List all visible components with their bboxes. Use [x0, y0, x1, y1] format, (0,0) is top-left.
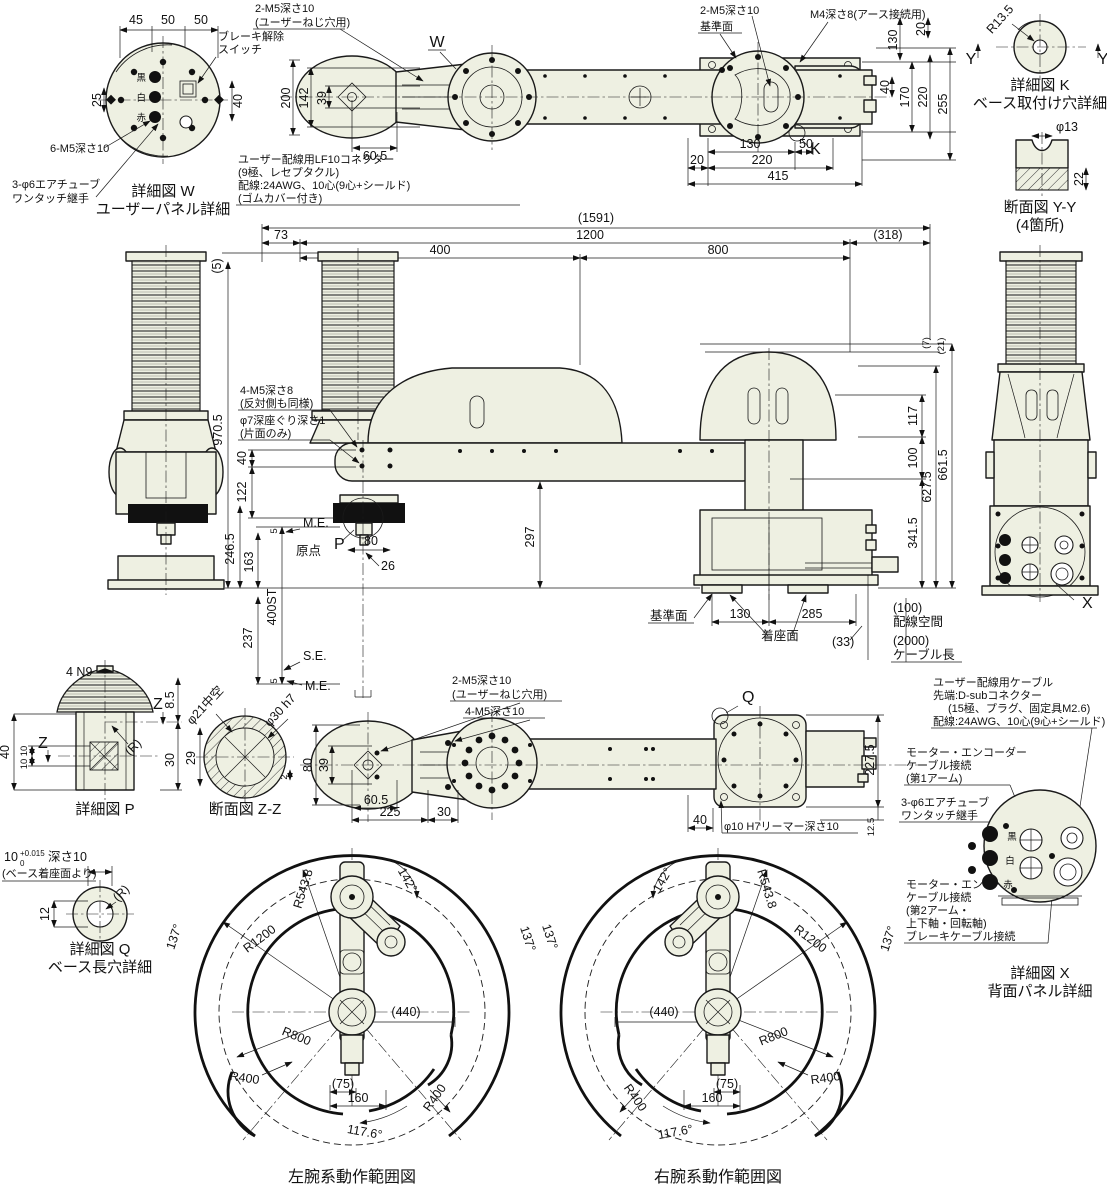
cable-air-2: ワンタッチ継手 [901, 808, 978, 822]
envr-75: (75) [716, 1077, 738, 1091]
x-wire-white: 白 [1005, 855, 1015, 867]
marker-p: P [334, 536, 345, 553]
tol-depth: 深さ10 [48, 850, 87, 864]
wire-white-label: 白 [136, 92, 146, 104]
dim-21: (21) [936, 338, 947, 355]
dim-80-elev: 80 [364, 534, 378, 548]
envl-440: (440) [391, 1005, 420, 1019]
dim-50b: 50 [194, 13, 208, 27]
label-datum-bottom: 基準面 [650, 608, 688, 623]
dim-20v: 20 [914, 22, 928, 36]
detail-x-subtitle: 背面パネル詳細 [987, 983, 1092, 1000]
label-m5b: (反対側も同様) [240, 396, 313, 410]
detail-w-subtitle: ユーザーパネル詳細 [96, 201, 231, 218]
dim-25: 25 [90, 93, 104, 107]
envl-160: 160 [348, 1091, 369, 1105]
dim-40-elev: 40 [235, 451, 249, 465]
plan-user-hole-2: (ユーザーねじ穴用) [255, 15, 350, 29]
dim-40-p: 40 [0, 745, 12, 759]
dim-415: 415 [768, 169, 789, 183]
section-zz-title: 断面図 Z-Z [209, 801, 282, 818]
marker-x: X [1082, 595, 1093, 612]
plan-datum: 基準面 [700, 19, 733, 33]
marker-w: W [429, 34, 445, 51]
marker-q: Q [742, 689, 754, 706]
dim-627-5: 627.5 [920, 471, 934, 502]
dim-8-5: 8.5 [163, 691, 177, 708]
envelope-right-title: 右腕系動作範囲図 [654, 1168, 782, 1186]
dim-39-bottom: 39 [317, 758, 331, 772]
cable-user-2: 先端:D-subコネクター [933, 689, 1042, 702]
section-yy-note: (4箇所) [1016, 217, 1064, 234]
label-cable-length: ケーブル長 [893, 647, 955, 662]
dim-26: 26 [381, 559, 395, 573]
dim-246-5: 246.5 [223, 533, 237, 564]
dim-40-bottom: 40 [693, 813, 707, 827]
bottom-user-hole-1: 2-M5深さ10 [452, 674, 511, 687]
dim-255: 255 [936, 94, 950, 115]
plan-earth-label: M4深さ8(アース接続用) [810, 7, 926, 21]
label-4n9: 4 N9 [66, 665, 92, 679]
detail-x-title: 詳細図 X [1010, 965, 1069, 982]
envelope-left-title: 左腕系動作範囲図 [288, 1168, 416, 1186]
cable-motor2-5: ブレーキケーブル接続 [906, 929, 1015, 943]
dim-661-5: 661.5 [936, 449, 950, 480]
detail-w-title: 詳細図 W [131, 183, 195, 200]
marker-z1: Z [153, 696, 163, 713]
dim-80-bottom: 80 [301, 758, 315, 772]
tol-sup: +0.015 [20, 849, 45, 858]
bottom-m5-label: 4-M5深さ10 [465, 705, 524, 718]
marker-y2: Y [1098, 51, 1107, 68]
wire-red-label: 赤 [136, 113, 146, 124]
dim-40-w: 40 [231, 94, 245, 108]
marker-y1: Y [966, 51, 977, 68]
plan-conn-1: ユーザー配線用LF10コネクター [238, 152, 394, 166]
label-me2: M.E. [305, 679, 331, 693]
dim-39: 39 [315, 91, 329, 105]
dim-1200: 1200 [576, 228, 604, 242]
dim-237: 237 [241, 628, 255, 649]
dim-30-bottom: 30 [437, 805, 451, 819]
brake-label-2: スイッチ [218, 43, 262, 56]
dim-142: 142 [297, 88, 311, 109]
label-se: S.E. [303, 649, 327, 663]
x-wire-black: 黒 [1007, 832, 1017, 843]
plan-conn-4: (ゴムカバー付き) [238, 191, 322, 205]
dim-100w: (100) [893, 601, 922, 615]
cable-motor1-1: モーター・エンコーダー [906, 745, 1027, 759]
cable-user-1: ユーザー配線用ケーブル [933, 675, 1053, 689]
dim-12-5: 12.5 [866, 818, 877, 837]
envl-75: (75) [332, 1077, 354, 1091]
dim-285: 285 [802, 607, 823, 621]
dim-400st: 400ST [265, 588, 279, 625]
dim-297: 297 [523, 527, 537, 548]
dim-2: 2 [279, 774, 290, 779]
dim-130b: 130 [740, 137, 761, 151]
dim-73: 73 [274, 228, 288, 242]
cable-user-4: 配線:24AWG、10心(9心+シールド) [933, 714, 1105, 728]
plan-conn-2: (9極、レセプタクル) [238, 165, 339, 179]
detail-k-title: 詳細図 K [1010, 77, 1069, 94]
dim-10b: 10 [19, 759, 30, 770]
dim-100: 100 [906, 448, 920, 469]
plan-user-hole-1: 2-M5深さ10 [255, 2, 314, 15]
dim-163: 163 [242, 552, 256, 573]
cable-air-1: 3-φ6エアチューブ [901, 795, 989, 809]
label-reamer: φ10 H7リーマー深さ10 [724, 820, 839, 833]
brake-label-1: ブレーキ解除 [218, 29, 284, 43]
dim-800: 800 [708, 243, 729, 257]
label-cbb: (片面のみ) [240, 427, 291, 440]
dim-318: (318) [873, 228, 902, 242]
label-seat: 着座面 [761, 628, 799, 643]
dim-1591: (1591) [578, 211, 614, 225]
cable-motor2-2: ケーブル接続 [906, 890, 971, 904]
tol-sub: 0 [20, 859, 25, 868]
dim-2000: (2000) [893, 634, 929, 648]
envr-160: 160 [702, 1091, 723, 1105]
plan-m5-right: 2-M5深さ10 [700, 4, 759, 17]
wire-black-label: 黒 [136, 73, 146, 84]
bottom-user-hole-2: (ユーザーねじ穴用) [452, 687, 547, 701]
dim-130v: 130 [886, 30, 900, 51]
dim-30-p: 30 [163, 753, 177, 767]
envr-440: (440) [649, 1005, 678, 1019]
label-m5a: 4-M5深さ8 [240, 384, 293, 397]
detail-p-title: 詳細図 P [75, 801, 134, 818]
robot-dimension-drawing: 黒 白 赤 45 50 50 ブレーキ解除 スイッチ 25 40 6-M5深さ1… [0, 0, 1107, 1187]
dim-33: (33) [832, 635, 854, 649]
dim-10a: 10 [19, 746, 30, 757]
detail-k-subtitle: ベース取付け穴詳細 [973, 95, 1107, 112]
dim-117: 117 [906, 406, 920, 426]
label-cba: φ7深座ぐり深さ1 [240, 413, 325, 427]
dim-220b: 220 [752, 153, 773, 167]
dim-227-5: 227.5 [863, 744, 877, 775]
dim-5b: 5 [269, 678, 280, 683]
dim-50a: 50 [161, 13, 175, 27]
dim-970-5: 970.5 [211, 414, 225, 445]
dim-220v: 220 [916, 87, 930, 108]
air-label-1: 3-φ6エアチューブ [12, 177, 100, 191]
air-label-2: ワンタッチ継手 [12, 191, 89, 205]
cable-motor1-3: (第1アーム) [906, 771, 962, 785]
dim-40-plan: 40 [878, 80, 892, 94]
dim-170: 170 [898, 87, 912, 108]
dim-400: 400 [430, 243, 451, 257]
plan-conn-3: 配線:24AWG、10心(9心+シールド) [238, 178, 410, 192]
cable-motor2-3: (第2アーム・ [906, 903, 970, 917]
dim-122: 122 [235, 482, 249, 503]
dim-29: 29 [184, 751, 198, 765]
dim-22: 22 [1072, 172, 1086, 186]
marker-z2: Z [38, 735, 48, 752]
dim-50b: 50 [799, 137, 813, 151]
drawing-canvas: 黒 白 赤 45 50 50 ブレーキ解除 スイッチ 25 40 6-M5深さ1… [0, 0, 1107, 1187]
detail-q-title: 詳細図 Q [70, 941, 131, 958]
cable-user-3: (15極、プラグ、固定具M2.6) [948, 701, 1090, 715]
dim-200: 200 [279, 88, 293, 109]
tol-from: (ベース着座面より) [2, 866, 97, 880]
dim-12: 12 [38, 907, 52, 921]
section-yy-title: 断面図 Y-Y [1004, 199, 1077, 216]
label-me1: M.E. [303, 516, 329, 530]
label-origin: 原点 [296, 544, 321, 558]
m5-label: 6-M5深さ10 [50, 142, 109, 155]
cable-motor1-2: ケーブル接続 [906, 758, 971, 772]
tol-base: 10 [4, 850, 18, 864]
dim-20b: 20 [690, 153, 704, 167]
dim-45: 45 [129, 13, 143, 27]
dim-phi13: φ13 [1056, 120, 1078, 134]
detail-q-subtitle: ベース長穴詳細 [48, 959, 152, 976]
dim-5t: (5) [210, 258, 224, 273]
cable-motor2-4: 上下軸・回転軸) [906, 916, 987, 930]
dim-7: (7) [921, 337, 932, 349]
dim-341-5: 341.5 [906, 517, 920, 548]
label-wiring-space: 配線空間 [893, 614, 943, 629]
dim-5me: 5 [269, 528, 280, 533]
